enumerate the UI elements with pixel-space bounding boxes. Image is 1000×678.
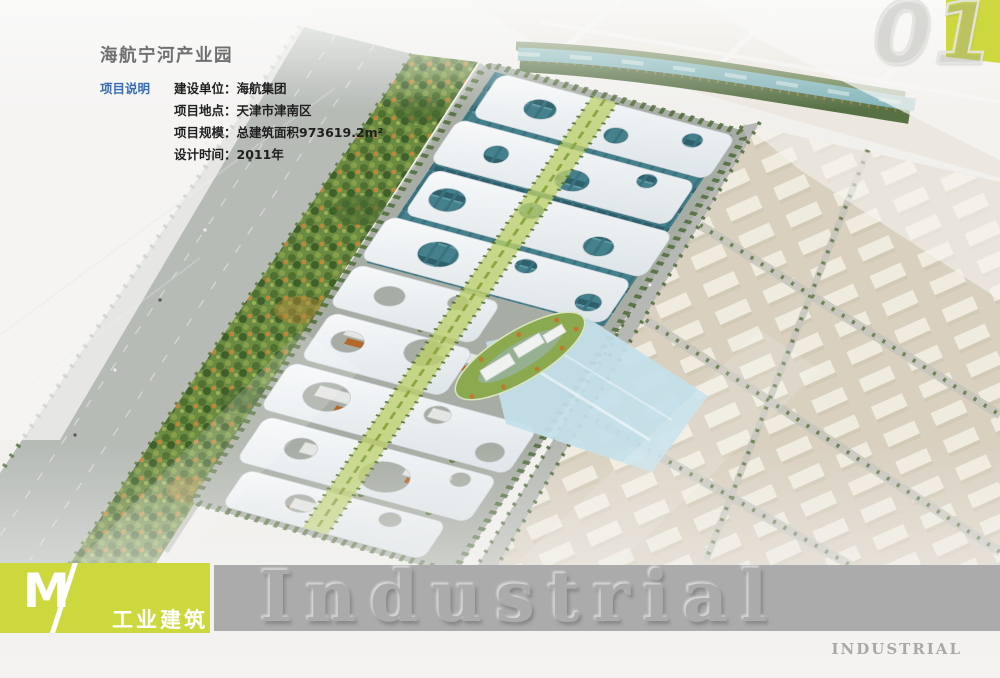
page-number: 01	[850, 0, 1000, 110]
watermark-bar: Industrial	[214, 565, 1000, 631]
page-number-digits: 01	[872, 0, 994, 84]
industrial-corner-label: INDUSTRIAL	[832, 640, 962, 658]
info-row-scale: 项目规模：总建筑面积973619.2m²	[174, 125, 383, 140]
logo-box: M 工业建筑	[0, 563, 210, 633]
watermark-text: Industrial	[260, 565, 781, 631]
info-row-design-time: 设计时间：2011年	[174, 147, 383, 162]
category-label: 工业建筑	[112, 604, 208, 633]
project-info-rows: 建设单位：海航集团 项目地点：天津市津南区 项目规模：总建筑面积973619.2…	[174, 81, 383, 169]
footer-band: M 工业建筑 Industrial	[0, 563, 1000, 634]
info-row-location: 项目地点：天津市津南区	[174, 103, 383, 118]
page: 海航宁河产业园 项目说明 建设单位：海航集团 项目地点：天津市津南区 项目规模：…	[0, 0, 1000, 678]
page-title: 海航宁河产业园	[100, 42, 233, 67]
info-row-builder: 建设单位：海航集团	[174, 81, 383, 96]
project-info-section-label: 项目说明	[100, 81, 156, 169]
project-info-panel: 项目说明 建设单位：海航集团 项目地点：天津市津南区 项目规模：总建筑面积973…	[100, 81, 383, 169]
